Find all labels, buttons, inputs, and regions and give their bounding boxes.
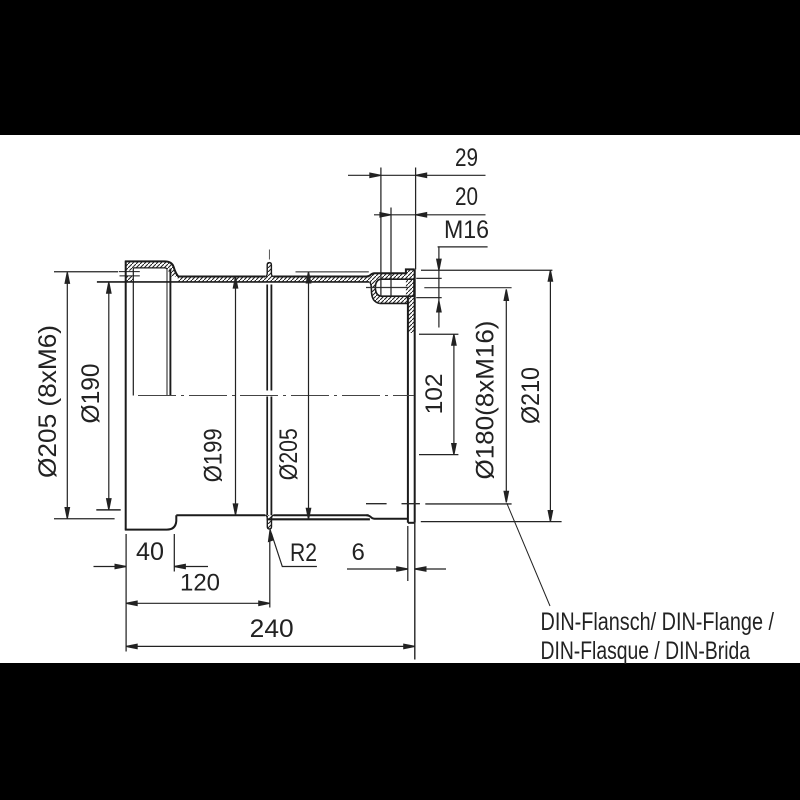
svg-text:DIN-Flansch/ DIN-Flange /: DIN-Flansch/ DIN-Flange / <box>541 608 775 636</box>
svg-text:Ø205 (8xM6): Ø205 (8xM6) <box>34 325 62 478</box>
svg-text:M16: M16 <box>444 216 489 244</box>
svg-text:120: 120 <box>180 570 220 597</box>
svg-text:R2: R2 <box>290 539 317 567</box>
svg-text:Ø210: Ø210 <box>517 367 545 424</box>
svg-text:29: 29 <box>455 144 478 172</box>
svg-text:20: 20 <box>455 183 478 211</box>
svg-text:6: 6 <box>352 539 365 566</box>
svg-text:40: 40 <box>136 538 164 566</box>
svg-text:Ø205: Ø205 <box>275 428 303 480</box>
svg-text:Ø199: Ø199 <box>199 428 227 482</box>
svg-text:102: 102 <box>421 373 448 414</box>
svg-text:Ø190: Ø190 <box>77 364 105 424</box>
svg-text:240: 240 <box>250 615 294 643</box>
svg-text:DIN-Flasque / DIN-Brida: DIN-Flasque / DIN-Brida <box>541 637 751 665</box>
svg-text:Ø180(8xM16): Ø180(8xM16) <box>472 321 500 480</box>
